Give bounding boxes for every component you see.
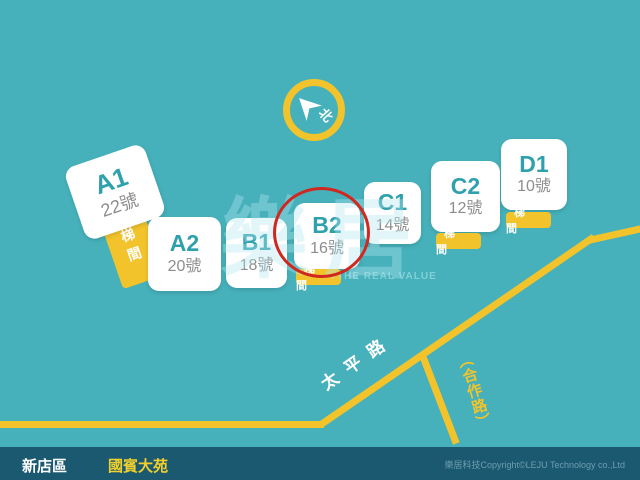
building-b1[interactable]: B1 18號: [226, 218, 287, 288]
road-label-hezuo: （合作路）: [452, 350, 495, 433]
building-d1-number: 10號: [517, 177, 551, 197]
building-b2-selected[interactable]: B2 16號: [294, 203, 360, 269]
road-taiping-diagonal-segment: [319, 234, 596, 427]
compass: 北: [283, 79, 345, 141]
building-c2-label: C2: [451, 174, 480, 199]
stairwell-label-d: 梯間: [506, 212, 551, 228]
footer-bar: 新店區 國賓大苑 樂居科技Copyright©LEJU Technology c…: [0, 447, 640, 480]
building-b1-number: 18號: [240, 256, 274, 276]
building-b2-number: 16號: [310, 239, 344, 259]
building-a2-label: A2: [170, 231, 199, 256]
road-taiping-horizontal-segment: [0, 421, 324, 428]
building-a2[interactable]: A2 20號: [148, 217, 221, 291]
building-c1[interactable]: C1 14號: [364, 182, 421, 244]
road-label-taiping: 太平路: [315, 326, 398, 395]
stairwell-label-b: 梯間: [296, 269, 341, 285]
road-taiping-end-segment: [587, 225, 640, 244]
building-d1[interactable]: D1 10號: [501, 139, 567, 210]
watermark-tagline: THE REAL VALUE: [337, 271, 437, 282]
building-a2-number: 20號: [168, 257, 202, 277]
building-c1-number: 14號: [376, 216, 410, 236]
stairwell-label-c: 梯間: [436, 233, 481, 249]
district-label: 新店區: [22, 455, 67, 476]
community-site-map: 北 太平路 （合作路） 梯間 梯間 梯間 梯間 A1 22號 A2 20號 B1…: [0, 0, 640, 480]
building-c2-number: 12號: [449, 199, 483, 219]
building-c1-label: C1: [378, 190, 407, 215]
building-b2-label: B2: [312, 213, 341, 238]
community-name: 國賓大苑: [108, 455, 168, 476]
building-c2[interactable]: C2 12號: [431, 161, 500, 232]
building-b1-label: B1: [242, 230, 271, 255]
road-hezuo-branch: [419, 353, 460, 444]
building-d1-label: D1: [519, 152, 548, 177]
copyright-text: 樂居科技Copyright©LEJU Technology co.,Ltd: [444, 458, 625, 471]
